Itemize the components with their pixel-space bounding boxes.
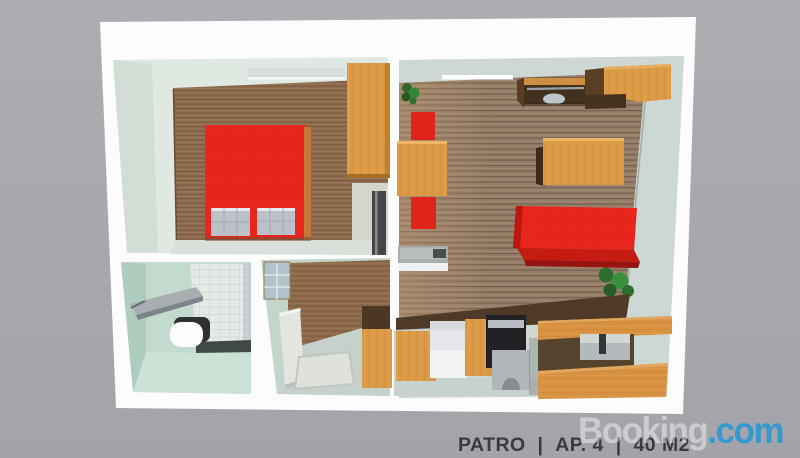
svg-text:Booking.com: Booking.com xyxy=(578,410,783,451)
